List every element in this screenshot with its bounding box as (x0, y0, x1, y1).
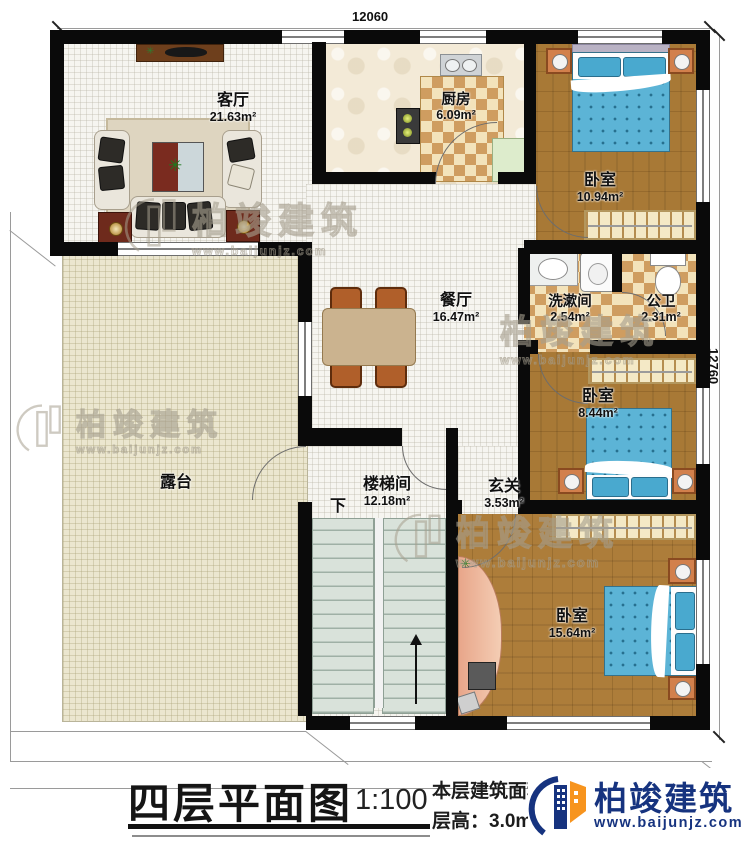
window (350, 716, 415, 730)
room-name: 卧室 (578, 388, 618, 406)
room-name: 厨房 (436, 92, 476, 108)
room-label-terrace: 露台 (160, 474, 192, 492)
wardrobe (552, 514, 696, 540)
lamp (675, 681, 691, 697)
sink-bowl (462, 59, 477, 72)
room-name: 卧室 (549, 608, 596, 626)
down-text: 下 (330, 498, 346, 516)
room-label-hall: 玄关 3.53m² (484, 478, 524, 510)
dining-table (322, 308, 416, 366)
lamp (677, 474, 693, 490)
eave-diagonal-bottomcenter (305, 731, 348, 765)
lamp (552, 54, 568, 70)
plan-scale: 1:100 (355, 784, 428, 817)
wall (50, 30, 282, 44)
room-area: 6.09m² (436, 108, 476, 122)
wall (524, 240, 696, 254)
plant-icon: ✳ (146, 46, 156, 56)
sofa-cushion (226, 137, 255, 163)
bed-pillow (592, 477, 629, 497)
room-label-bedroom-top: 卧室 10.94m² (577, 172, 624, 204)
wall (298, 242, 312, 322)
nightstand (558, 468, 584, 494)
window (298, 322, 312, 396)
room-area: 16.47m² (433, 310, 480, 324)
dim-top-value: 12060 (352, 9, 388, 24)
stair-flight-left (312, 518, 374, 714)
floor-height-text: 层高：3.0m (432, 806, 532, 833)
wall (612, 248, 622, 292)
wall (446, 428, 458, 718)
nightstand (546, 48, 572, 74)
wall (306, 716, 350, 730)
room-area: 21.63m² (210, 110, 257, 124)
title-underline-thin (132, 835, 430, 837)
side-table-right (226, 210, 260, 242)
side-table-left (98, 212, 132, 244)
room-label-bedroom-mid: 卧室 8.44m² (578, 388, 618, 420)
bed-top (572, 52, 670, 152)
stairs-down-label: 下 (330, 498, 346, 516)
burner (403, 128, 412, 137)
stair-flight-right (382, 518, 446, 714)
room-name: 餐厅 (433, 292, 480, 310)
nightstand (672, 468, 696, 494)
nightstand (668, 558, 696, 584)
tv (165, 47, 207, 57)
room-label-bedroom-bottom: 卧室 15.64m² (549, 608, 596, 640)
wall (518, 500, 710, 514)
room-area: 3.53m² (484, 496, 524, 510)
room-area: 2.31m² (641, 310, 681, 324)
wardrobe (588, 358, 696, 384)
brand-logo-text: 柏竣建筑 (594, 782, 743, 815)
bed-mid (586, 408, 672, 500)
brand-logo-url: www.baijunjz.com (594, 815, 743, 831)
table-knob (109, 222, 123, 236)
sink-bowl (445, 59, 460, 72)
floor-plan-canvas: 12060 12760 ✳ ✳ (0, 0, 750, 850)
sofa-cushion (187, 201, 214, 231)
toilet-bowl (655, 266, 681, 296)
room-area: 2.54m² (548, 310, 592, 324)
room-area: 10.94m² (577, 190, 624, 204)
brand-logo-icon (528, 771, 590, 841)
washroom-counter (528, 252, 578, 286)
wall (312, 172, 436, 184)
nightstand (668, 676, 696, 700)
room-name: 客厅 (210, 92, 257, 110)
wall (650, 716, 710, 730)
room-label-dining: 餐厅 16.47m² (433, 292, 480, 324)
bed-fold (649, 585, 670, 678)
room-name: 露台 (160, 474, 192, 492)
wall (415, 716, 507, 730)
wall (306, 428, 402, 446)
lamp (675, 564, 691, 580)
room-label-toilet: 公卫 2.31m² (641, 294, 681, 324)
wall (298, 502, 312, 716)
bed-pillow (675, 633, 695, 671)
wall (518, 248, 530, 324)
sliding-door (118, 242, 258, 256)
wall (696, 30, 710, 90)
kitchen-sink (440, 54, 482, 76)
eave-diagonal-topleft (9, 230, 55, 266)
computer-monitor (468, 662, 496, 690)
wall (524, 42, 536, 184)
plan-title: 四层平面图 (128, 770, 353, 831)
bed-pillow (631, 477, 668, 497)
stair-rail (374, 518, 384, 708)
washing-machine (580, 252, 616, 292)
lamp (674, 54, 690, 70)
room-area: 15.64m² (549, 626, 596, 640)
plant-icon: ✳ (168, 156, 182, 176)
dim-line-top (57, 28, 710, 29)
room-name: 玄关 (484, 478, 524, 496)
sofa-cushion (162, 202, 186, 230)
eave-line-left (10, 212, 11, 762)
room-label-stairwell: 楼梯间 12.18m² (363, 476, 411, 508)
window (507, 716, 650, 730)
terrace-bottom-line (10, 731, 306, 732)
stair-arrow-line (415, 644, 417, 704)
burner (403, 114, 412, 123)
stair-arrow-head-icon (410, 634, 422, 645)
brand-logo: 柏竣建筑 www.baijunjz.com (528, 768, 748, 844)
wall (312, 42, 326, 184)
bed-pillow (675, 592, 695, 630)
toilet-tank (650, 252, 686, 266)
room-label-living: 客厅 21.63m² (210, 92, 257, 124)
window (420, 30, 486, 44)
wall (50, 30, 64, 256)
window (578, 30, 662, 44)
room-label-kitchen: 厨房 6.09m² (436, 92, 476, 122)
stove (396, 108, 420, 144)
sofa-cushion (98, 165, 125, 191)
room-area: 12.18m² (363, 494, 411, 508)
washer-drum (588, 263, 608, 285)
title-underline-thick (128, 824, 430, 829)
room-name: 洗漱间 (548, 294, 592, 310)
wall (590, 340, 696, 354)
eave-line-bottom-outer (10, 761, 712, 762)
washbasin (538, 258, 568, 280)
wardrobe (584, 210, 696, 240)
room-name: 楼梯间 (363, 476, 411, 494)
nightstand (668, 48, 694, 74)
window (696, 560, 710, 664)
wall (344, 30, 420, 44)
bed-bottom (604, 586, 700, 676)
window (696, 388, 710, 464)
sofa-cushion (135, 201, 161, 231)
window (696, 90, 710, 202)
room-area: 8.44m² (578, 406, 618, 420)
lamp (564, 474, 580, 490)
table-knob (237, 220, 251, 234)
sofa-cushion (97, 136, 125, 163)
wall (50, 242, 118, 256)
dim-line-right (719, 36, 720, 740)
room-name: 卧室 (577, 172, 624, 190)
bed-pillow (578, 57, 621, 77)
room-label-washroom: 洗漱间 2.54m² (548, 294, 592, 324)
room-name: 公卫 (641, 294, 681, 310)
wall (696, 202, 710, 388)
